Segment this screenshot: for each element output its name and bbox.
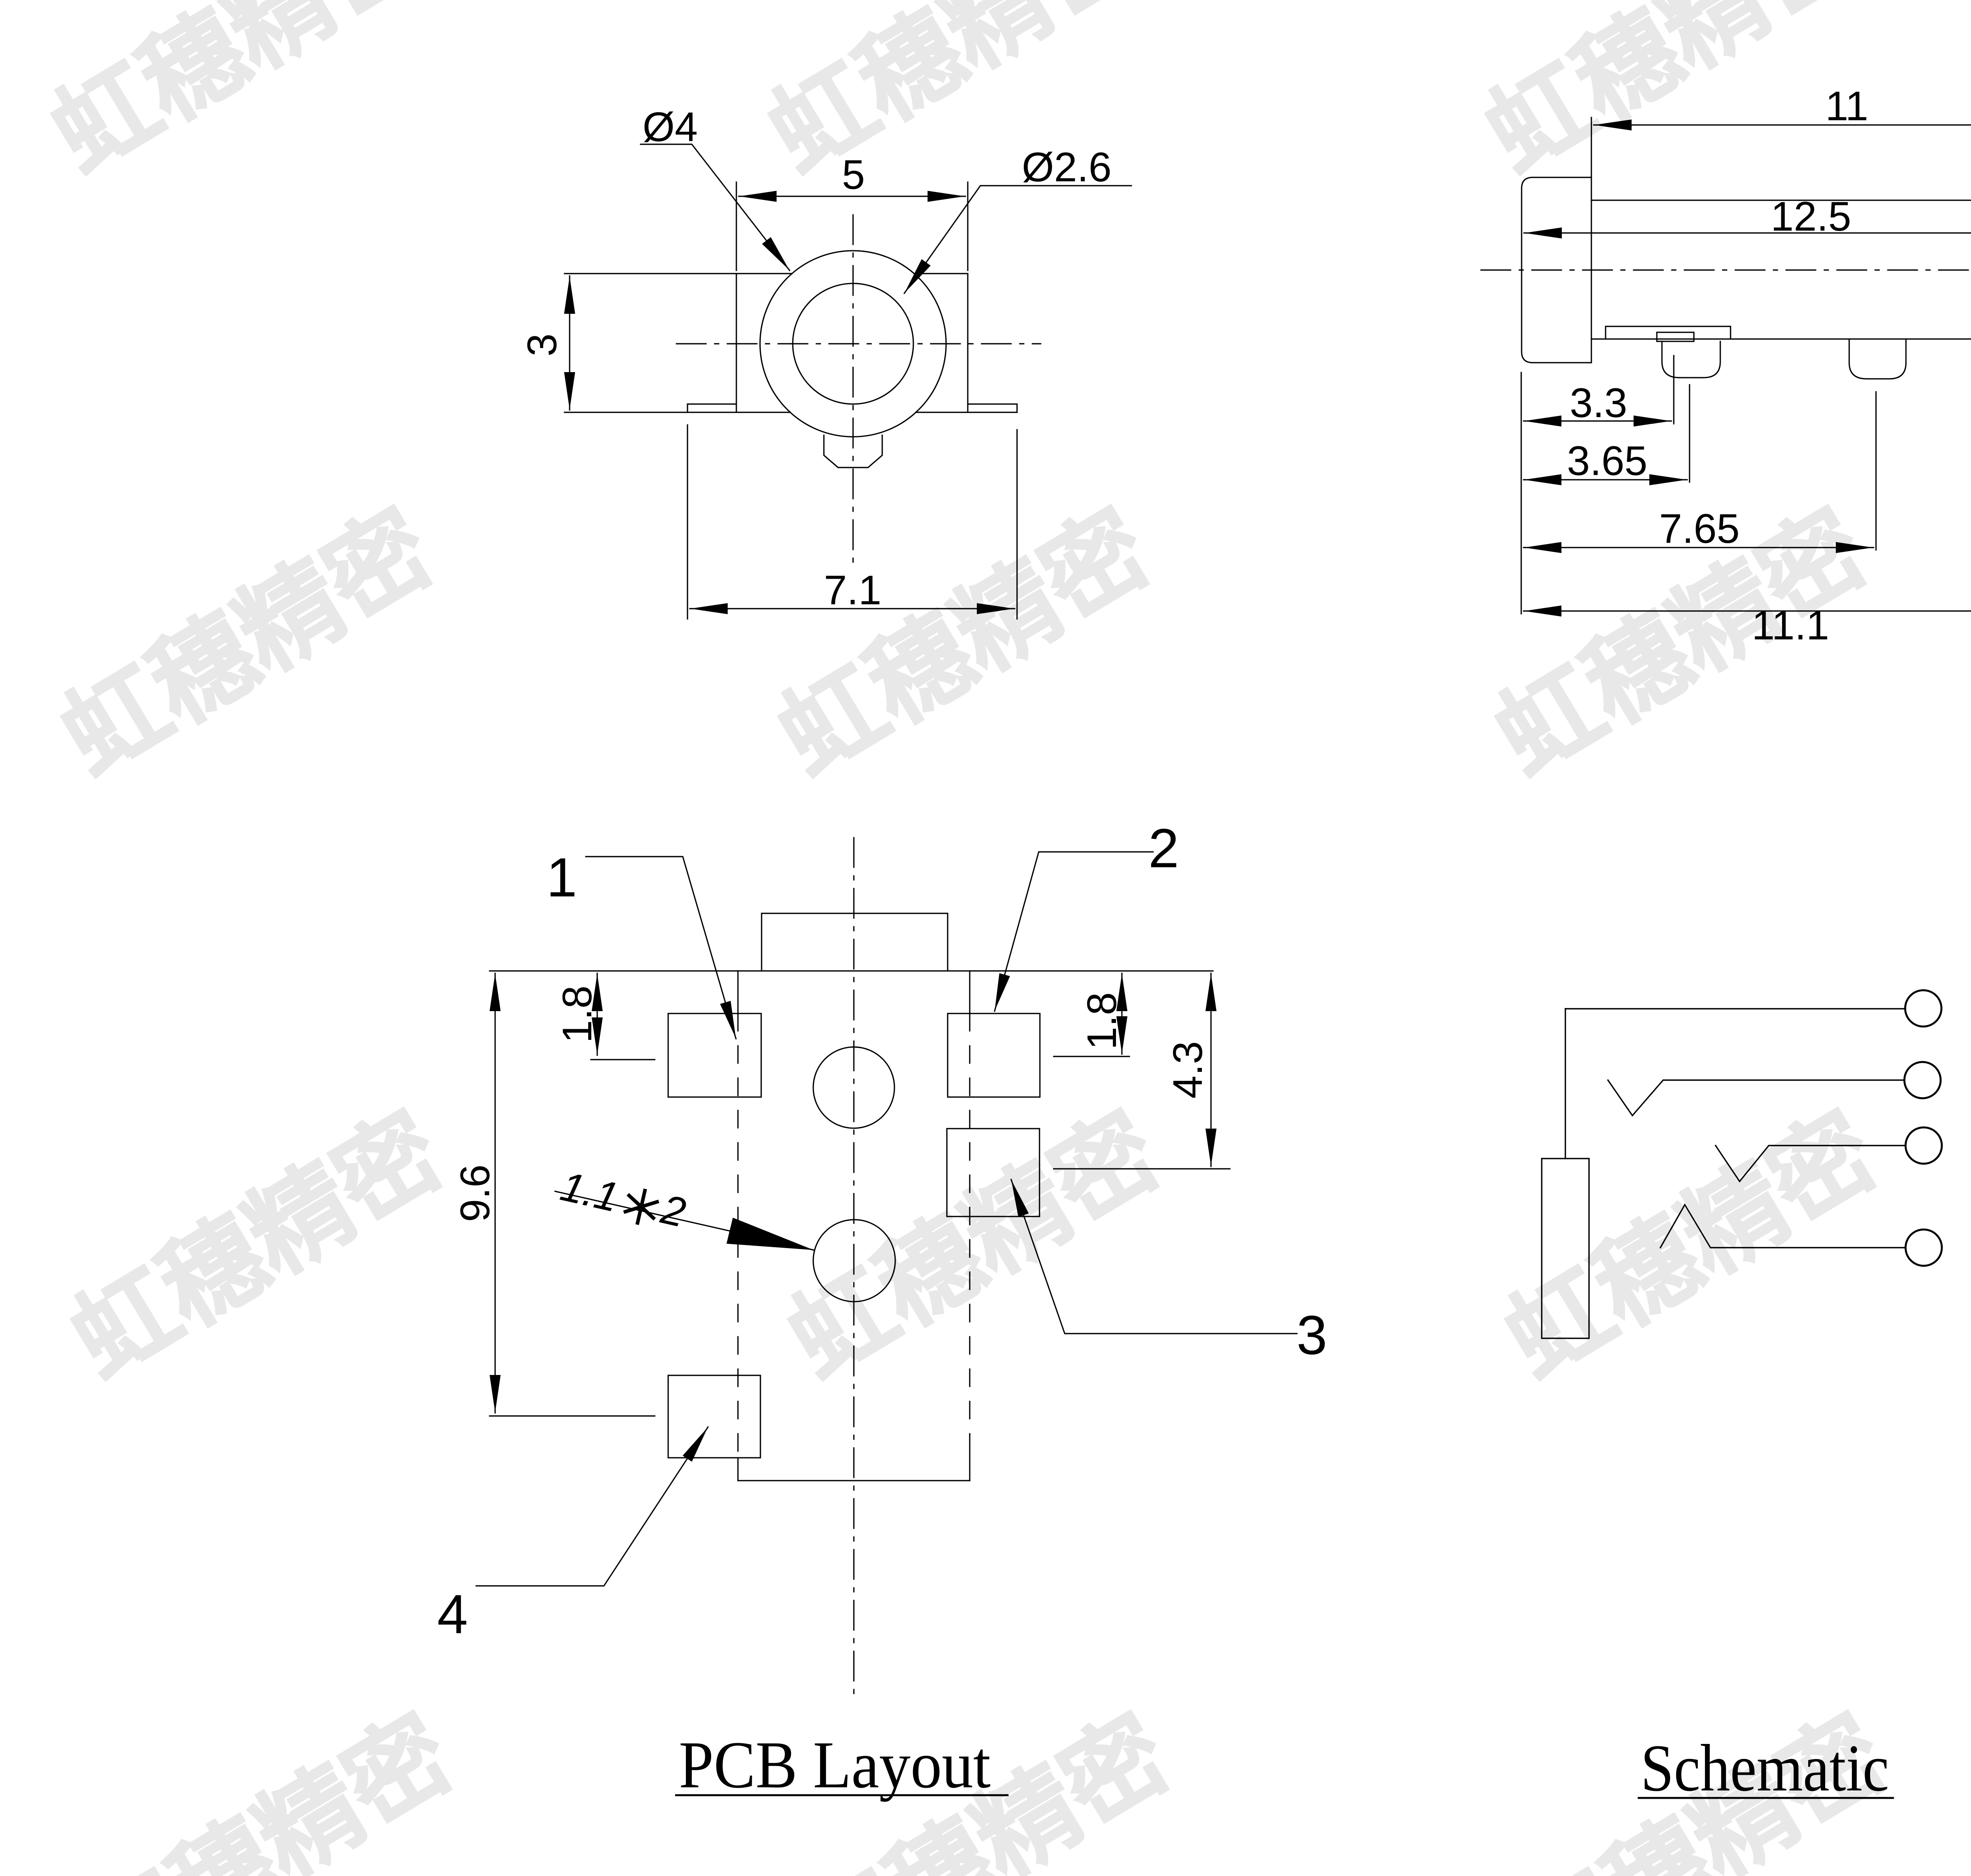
svg-text:1.8: 1.8 bbox=[554, 986, 600, 1043]
svg-text:1.8: 1.8 bbox=[1079, 992, 1125, 1050]
svg-text:11: 11 bbox=[1826, 83, 1869, 129]
svg-text:12.5: 12.5 bbox=[1771, 194, 1851, 240]
svg-text:7.65: 7.65 bbox=[1659, 506, 1740, 552]
svg-text:3.3: 3.3 bbox=[1570, 380, 1627, 426]
svg-text:11.1: 11.1 bbox=[1752, 602, 1829, 648]
svg-text:Schematic: Schematic bbox=[1641, 1731, 1889, 1805]
svg-text:PCB Layout: PCB Layout bbox=[679, 1728, 991, 1802]
svg-text:3: 3 bbox=[1297, 1304, 1327, 1366]
svg-text:2: 2 bbox=[1148, 817, 1179, 879]
svg-text:4: 4 bbox=[437, 1583, 468, 1645]
svg-text:1: 1 bbox=[546, 846, 577, 908]
svg-text:4.3: 4.3 bbox=[1165, 1041, 1211, 1099]
svg-text:3.65: 3.65 bbox=[1567, 438, 1647, 484]
svg-text:7.1: 7.1 bbox=[824, 567, 881, 613]
svg-text:9.6: 9.6 bbox=[452, 1164, 498, 1222]
svg-text:5: 5 bbox=[842, 152, 865, 198]
svg-text:Ø2.6: Ø2.6 bbox=[1022, 144, 1112, 190]
svg-text:3: 3 bbox=[519, 333, 565, 356]
svg-text:Ø4: Ø4 bbox=[643, 104, 698, 150]
